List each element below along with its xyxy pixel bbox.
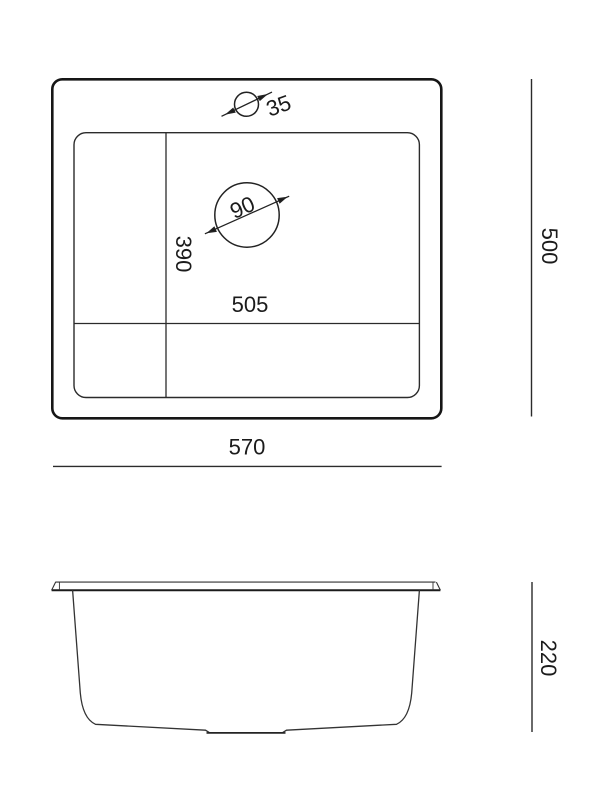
svg-text:570: 570 [229, 435, 266, 460]
svg-text:505: 505 [232, 292, 269, 317]
svg-text:390: 390 [171, 236, 196, 273]
svg-text:500: 500 [537, 228, 562, 265]
svg-text:220: 220 [536, 640, 561, 677]
